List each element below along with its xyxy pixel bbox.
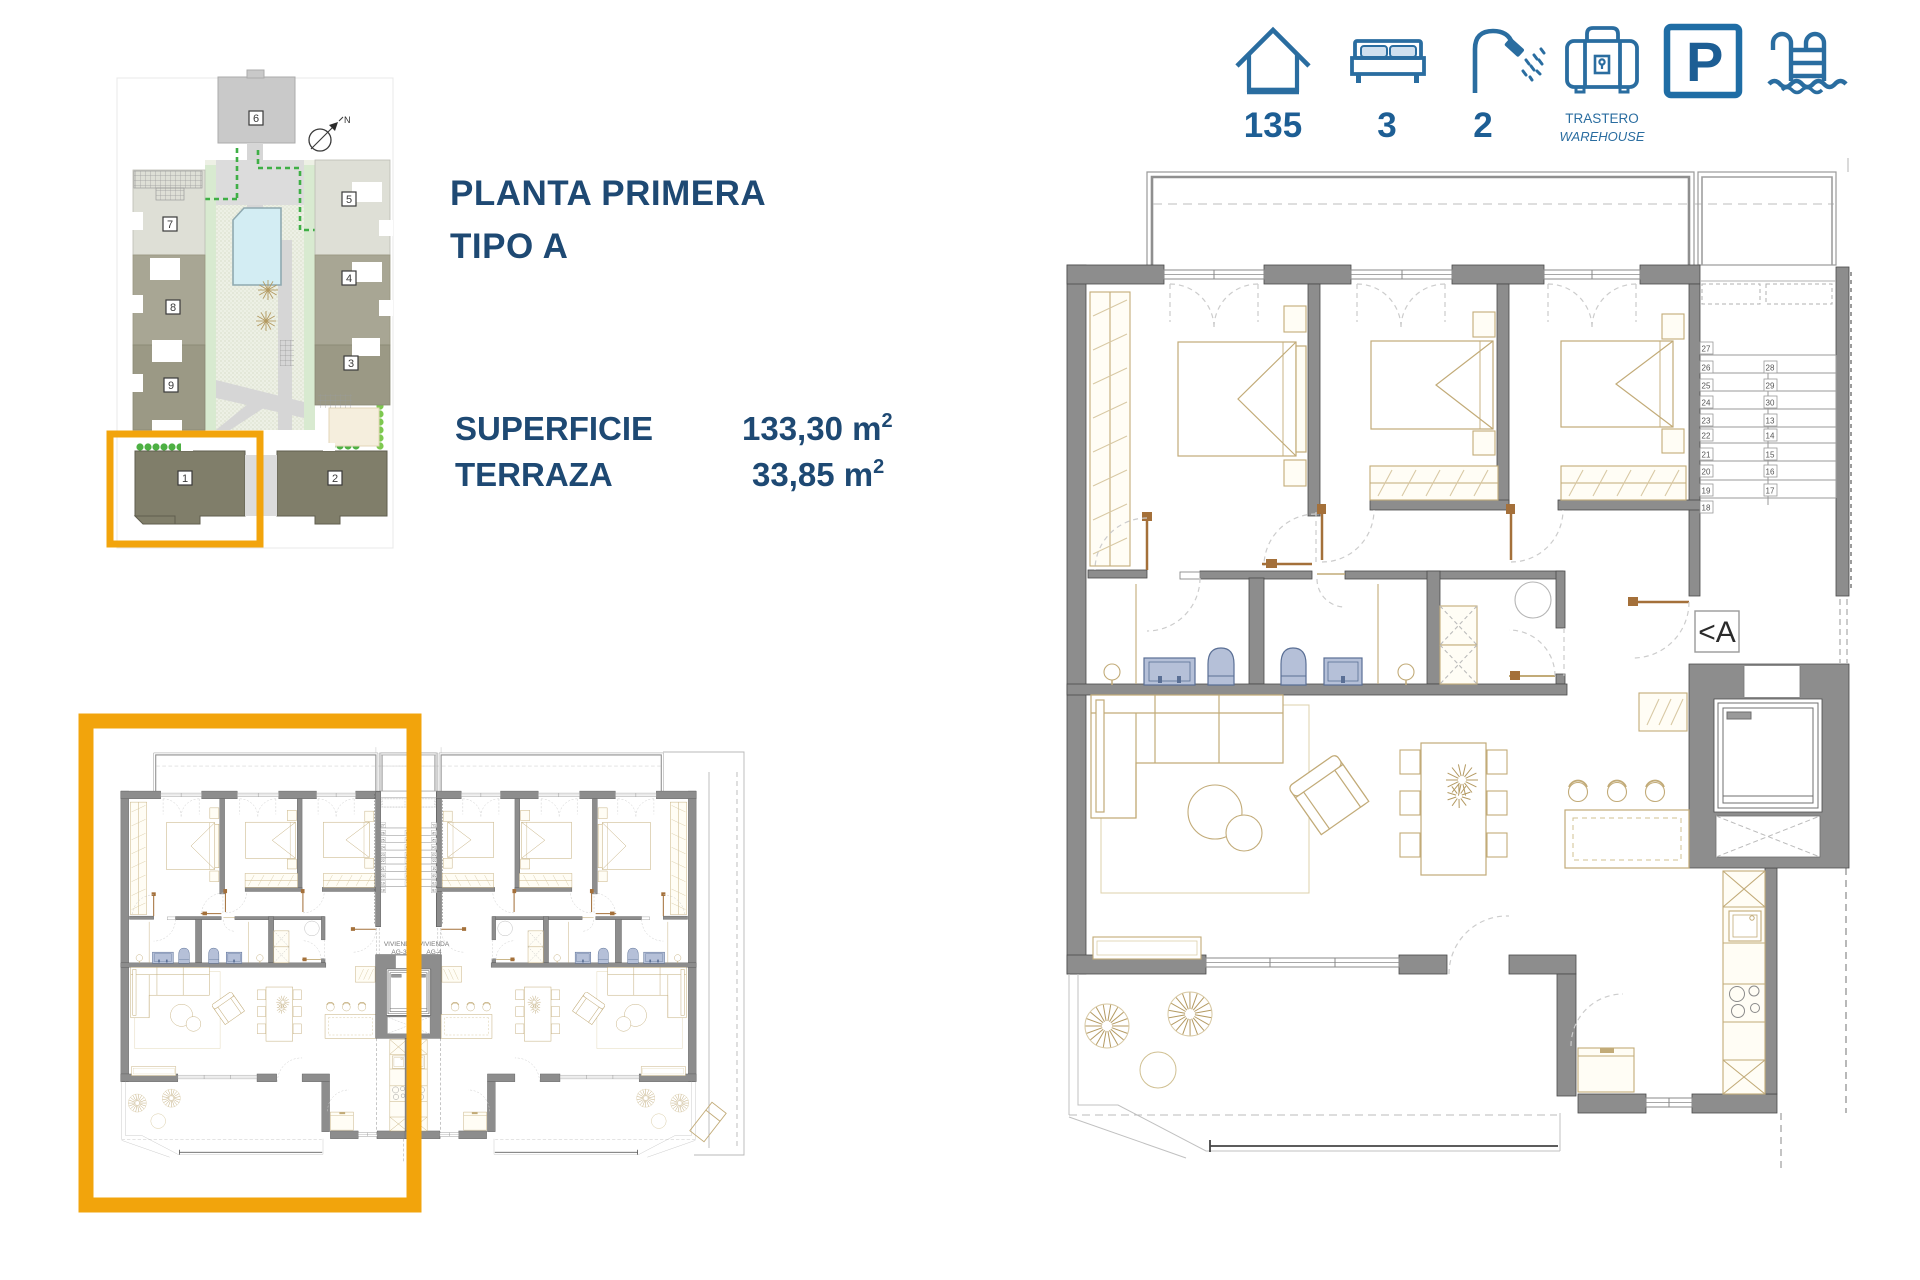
svg-text:8: 8 xyxy=(170,302,176,314)
svg-text:3: 3 xyxy=(1377,106,1396,145)
svg-text:135: 135 xyxy=(1244,106,1302,145)
svg-text:33,85 m2: 33,85 m2 xyxy=(752,456,884,493)
svg-text:9: 9 xyxy=(168,380,174,392)
svg-text:P: P xyxy=(1686,30,1723,93)
svg-text:TRASTERO: TRASTERO xyxy=(1565,111,1639,126)
svg-text:N: N xyxy=(344,115,351,125)
svg-text:<A: <A xyxy=(1698,616,1736,649)
svg-text:4: 4 xyxy=(346,273,352,285)
svg-text:WAREHOUSE: WAREHOUSE xyxy=(1560,129,1645,144)
svg-text:5: 5 xyxy=(346,194,352,206)
svg-text:6: 6 xyxy=(253,113,259,125)
svg-text:3: 3 xyxy=(348,358,354,370)
svg-text:PLANTA PRIMERA: PLANTA PRIMERA xyxy=(450,174,766,213)
svg-text:AG-3: AG-3 xyxy=(391,949,407,956)
svg-text:2: 2 xyxy=(332,473,338,485)
svg-text:VIVIENDA: VIVIENDA xyxy=(419,941,450,948)
svg-text:133,30 m2: 133,30 m2 xyxy=(742,410,893,447)
svg-text:7: 7 xyxy=(167,219,173,231)
svg-text:TIPO A: TIPO A xyxy=(450,227,568,266)
svg-text:TERRAZA: TERRAZA xyxy=(455,456,613,493)
svg-text:AG-4: AG-4 xyxy=(426,949,442,956)
svg-text:1: 1 xyxy=(182,473,188,485)
svg-text:SUPERFICIE: SUPERFICIE xyxy=(455,410,653,447)
svg-text:2: 2 xyxy=(1473,106,1492,145)
